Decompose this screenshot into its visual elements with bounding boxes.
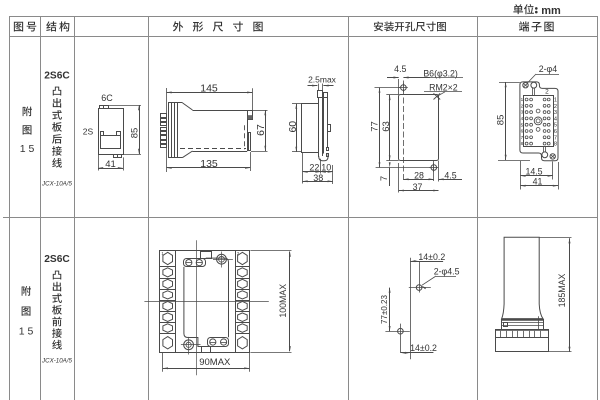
svg-text:2: 2 [237,251,240,256]
svg-text:90MAX: 90MAX [199,357,231,368]
svg-text:2-φ4: 2-φ4 [539,64,558,74]
svg-text:1 5: 1 5 [20,143,35,155]
svg-text:85: 85 [495,115,506,126]
svg-text:37: 37 [413,182,423,192]
svg-text:135: 135 [200,158,218,170]
svg-text:2: 2 [521,103,524,108]
svg-text:10: 10 [321,163,331,173]
svg-text:4: 4 [521,116,524,121]
svg-text:2S6C: 2S6C [44,254,70,265]
svg-text:5: 5 [554,123,557,129]
svg-text:4: 4 [554,116,557,122]
svg-text:4.5: 4.5 [394,64,406,74]
svg-text:185MAX: 185MAX [557,274,567,308]
svg-text:4.5: 4.5 [444,170,456,180]
svg-text:1: 1 [521,97,524,102]
svg-text:8: 8 [554,142,557,148]
svg-text:41: 41 [533,177,543,187]
svg-text:14.5: 14.5 [525,167,542,177]
svg-text:5: 5 [521,122,524,127]
svg-text:6C: 6C [101,93,113,103]
svg-text:RM2×2: RM2×2 [429,83,458,93]
svg-text:7: 7 [521,135,524,140]
svg-text:1 5: 1 5 [19,326,34,338]
svg-text:14±0.2: 14±0.2 [418,252,445,262]
svg-text:2-φ4.5: 2-φ4.5 [434,266,460,276]
svg-text:6: 6 [521,129,524,134]
svg-text:mm: mm [541,5,561,17]
svg-text:67: 67 [255,124,267,136]
svg-text:7: 7 [379,176,390,181]
svg-text:41: 41 [105,159,116,170]
svg-text:3: 3 [521,110,524,115]
svg-text:2.5max: 2.5max [308,75,337,85]
svg-text:77±0.23: 77±0.23 [380,295,389,324]
svg-text:7: 7 [554,135,557,141]
svg-text:145: 145 [200,82,218,94]
svg-text:2S: 2S [83,127,94,137]
svg-text:JCX-10A/5: JCX-10A/5 [41,357,72,364]
svg-text:1: 1 [554,98,557,104]
svg-text:2: 2 [554,104,557,110]
svg-text:2: 2 [545,89,549,96]
svg-text:22: 22 [309,163,319,173]
svg-text:6: 6 [554,129,557,135]
svg-text:100MAX: 100MAX [278,284,288,318]
svg-text:8: 8 [521,141,524,146]
svg-text:JCX-10A/5: JCX-10A/5 [41,181,72,188]
svg-text:3: 3 [554,110,557,116]
svg-text:63: 63 [381,121,392,132]
svg-text:77: 77 [369,121,380,132]
svg-text:14±0.2: 14±0.2 [410,343,437,353]
svg-text:85: 85 [130,128,141,139]
svg-text:28: 28 [414,170,424,180]
svg-text:60: 60 [287,121,299,133]
svg-text:2S6C: 2S6C [44,71,70,82]
svg-text:38: 38 [313,173,323,183]
